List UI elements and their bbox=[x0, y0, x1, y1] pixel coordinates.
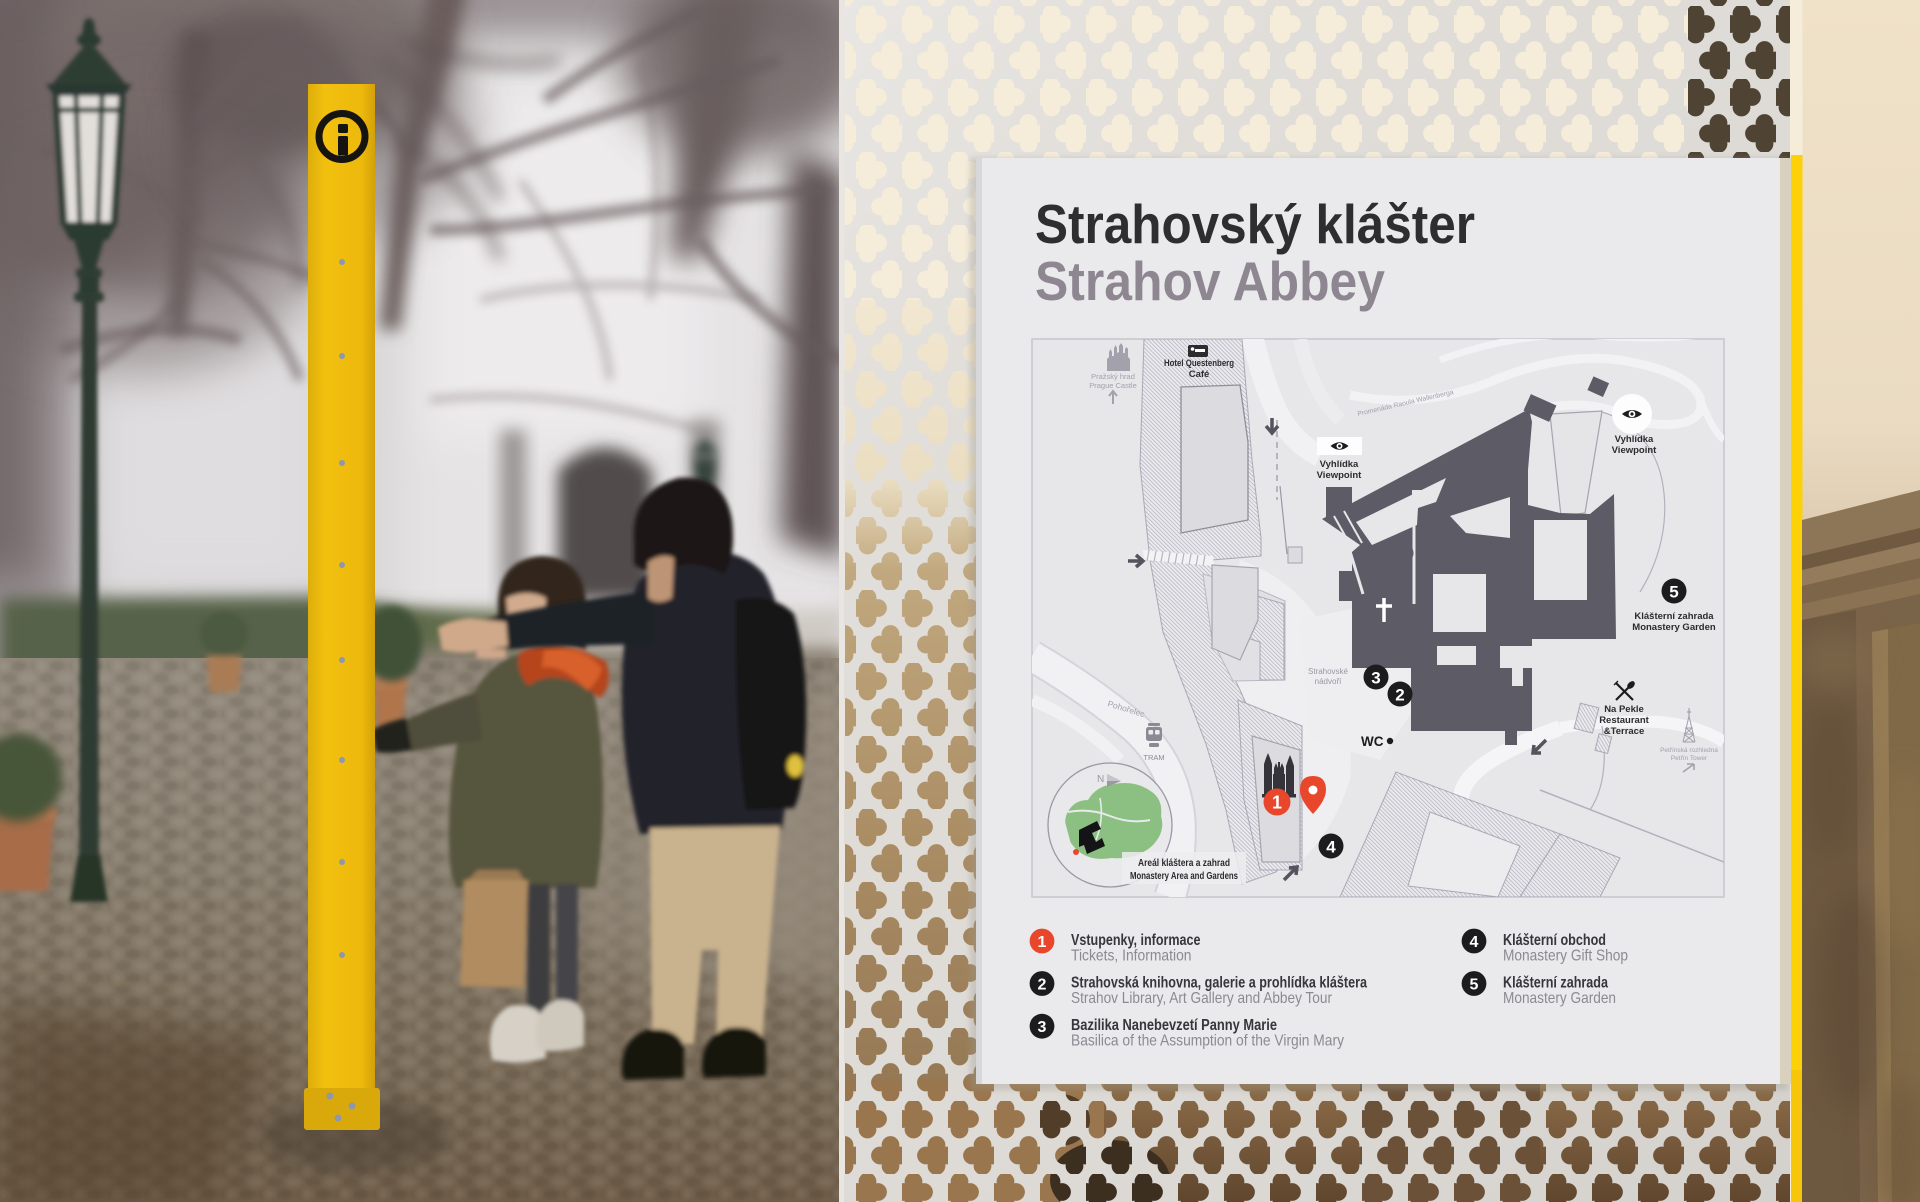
svg-text:Klášterní zahrada: Klášterní zahrada bbox=[1503, 975, 1608, 992]
svg-text:N: N bbox=[1097, 774, 1104, 785]
svg-text:Basilica of the Assumption of: Basilica of the Assumption of the Virgin… bbox=[1071, 1033, 1344, 1050]
svg-text:2: 2 bbox=[1395, 686, 1404, 705]
svg-text:Pražský hrad: Pražský hrad bbox=[1091, 372, 1135, 381]
svg-text:Vstupenky, informace: Vstupenky, informace bbox=[1071, 932, 1201, 949]
svg-text:Klášterní obchod: Klášterní obchod bbox=[1503, 932, 1606, 949]
svg-text:Strahov Abbey: Strahov Abbey bbox=[1035, 250, 1385, 312]
svg-text:Café: Café bbox=[1189, 369, 1210, 380]
svg-text:WC: WC bbox=[1361, 734, 1384, 749]
svg-text:Klášterní zahrada: Klášterní zahrada bbox=[1634, 611, 1714, 622]
svg-text:Prague Castle: Prague Castle bbox=[1089, 381, 1137, 390]
svg-text:nádvoří: nádvoří bbox=[1315, 677, 1342, 686]
svg-text:5: 5 bbox=[1669, 583, 1678, 602]
svg-text:Strahovská knihovna, galerie a: Strahovská knihovna, galerie a prohlídka… bbox=[1071, 975, 1367, 992]
svg-text:Monastery Garden: Monastery Garden bbox=[1632, 622, 1716, 633]
svg-text:3: 3 bbox=[1371, 669, 1380, 688]
svg-text:Monastery Gift Shop: Monastery Gift Shop bbox=[1503, 948, 1628, 965]
svg-text:Monastery Area and Gardens: Monastery Area and Gardens bbox=[1130, 870, 1238, 882]
svg-text:Petřín Tower: Petřín Tower bbox=[1671, 755, 1708, 762]
svg-text:4: 4 bbox=[1470, 934, 1479, 951]
svg-text:2: 2 bbox=[1038, 977, 1047, 994]
svg-text:Vyhlídka: Vyhlídka bbox=[1320, 459, 1359, 470]
svg-text:5: 5 bbox=[1470, 977, 1479, 994]
svg-text:Bazilika Nanebevzetí Panny Mar: Bazilika Nanebevzetí Panny Marie bbox=[1071, 1017, 1277, 1034]
svg-text:Restaurant: Restaurant bbox=[1599, 715, 1649, 726]
svg-text:Viewpoint: Viewpoint bbox=[1317, 470, 1363, 481]
svg-text:Hotel Questenberg: Hotel Questenberg bbox=[1164, 358, 1234, 369]
svg-text:3: 3 bbox=[1038, 1019, 1047, 1036]
svg-text:Petřínská rozhledna: Petřínská rozhledna bbox=[1660, 747, 1718, 754]
svg-text:Strahovský klášter: Strahovský klášter bbox=[1035, 193, 1475, 255]
svg-text:4: 4 bbox=[1326, 838, 1336, 857]
svg-text:Monastery Garden: Monastery Garden bbox=[1503, 990, 1616, 1007]
svg-text:Viewpoint: Viewpoint bbox=[1612, 445, 1658, 456]
svg-text:Areál kláštera a zahrad: Areál kláštera a zahrad bbox=[1138, 857, 1230, 869]
svg-text:&Terrace: &Terrace bbox=[1604, 726, 1645, 737]
svg-text:Na Pekle: Na Pekle bbox=[1604, 704, 1644, 715]
svg-text:TRAM: TRAM bbox=[1143, 753, 1164, 762]
svg-text:Vyhlídka: Vyhlídka bbox=[1615, 434, 1654, 445]
svg-text:Strahovské: Strahovské bbox=[1308, 667, 1349, 676]
svg-text:1: 1 bbox=[1038, 934, 1047, 951]
svg-text:Strahov Library, Art Gallery a: Strahov Library, Art Gallery and Abbey T… bbox=[1071, 990, 1332, 1007]
svg-text:Tickets, Information: Tickets, Information bbox=[1071, 948, 1192, 965]
svg-text:1: 1 bbox=[1272, 793, 1282, 813]
